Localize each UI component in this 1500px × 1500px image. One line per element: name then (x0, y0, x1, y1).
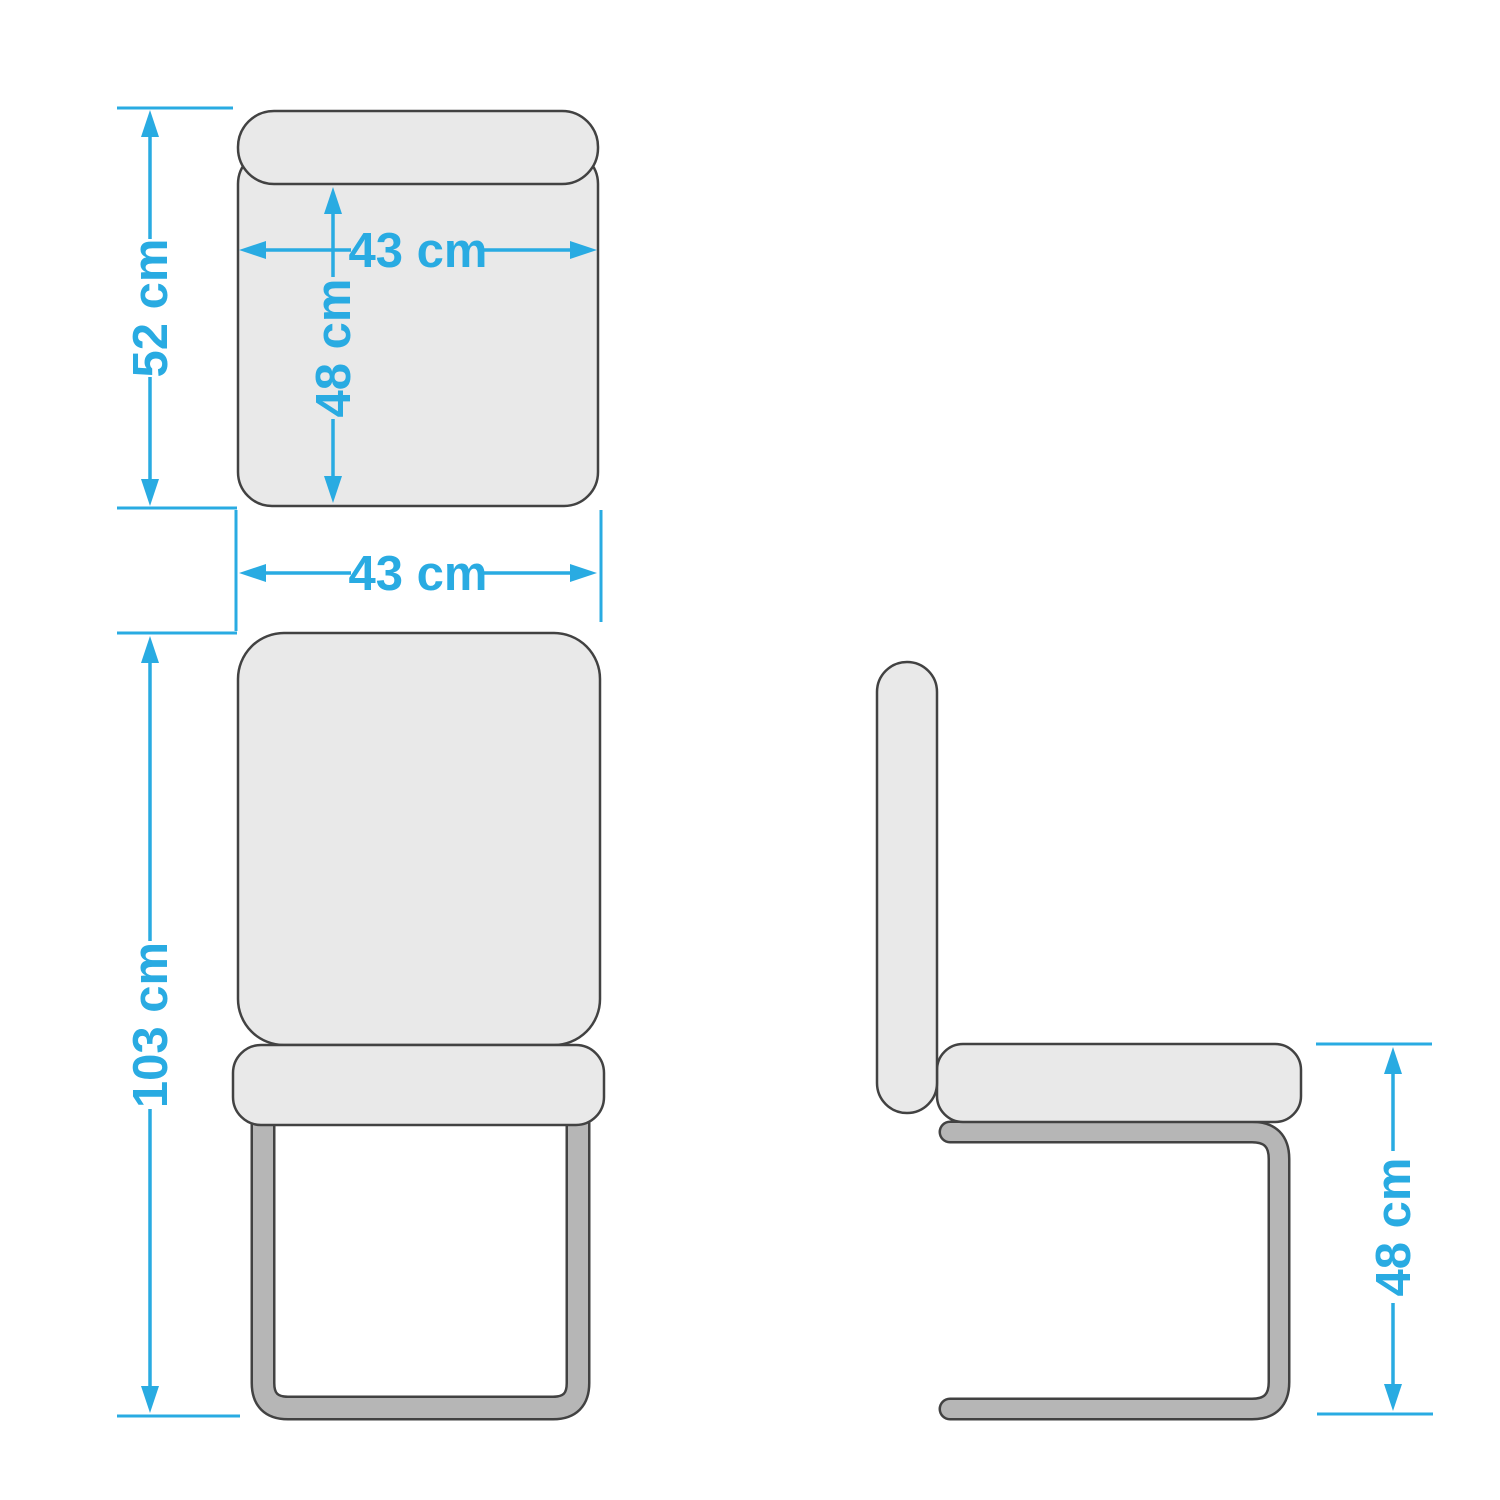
dim-label-top-seat-width: 43 cm (349, 224, 488, 278)
dim-label-front-overall-width: 43 cm (349, 547, 488, 601)
side-view-cantilever-frame-outline (950, 1132, 1279, 1409)
dim-label-top-seat-depth: 48 cm (307, 279, 361, 418)
arrowhead-up (141, 110, 159, 137)
side-view-backrest (877, 662, 937, 1113)
arrowhead-up (141, 636, 159, 663)
diagram-canvas: 43 cm 48 cm 52 cm 43 cm (0, 0, 1500, 1500)
front-view-seat-cushion (233, 1045, 604, 1125)
chair-dimension-diagram: 43 cm 48 cm 52 cm 43 cm (0, 0, 1500, 1500)
dim-side-seat-height: 48 cm (1316, 1044, 1433, 1414)
arrowhead-up (1384, 1047, 1402, 1074)
dim-label-side-seat-height: 48 cm (1367, 1158, 1421, 1297)
side-view-cantilever-frame (950, 1132, 1279, 1409)
dim-front-overall-height: 103 cm (117, 633, 240, 1416)
arrowhead-left (239, 564, 266, 582)
arrowhead-down (1384, 1384, 1402, 1411)
front-view (233, 633, 604, 1408)
arrowhead-down (141, 479, 159, 506)
front-view-sled-frame-outline (263, 1108, 578, 1408)
arrowhead-down (141, 1386, 159, 1413)
top-view (238, 111, 598, 506)
dim-top-total-depth: 52 cm (117, 108, 233, 506)
side-view (877, 662, 1301, 1409)
front-view-sled-frame (263, 1108, 578, 1408)
front-view-backrest (238, 633, 600, 1045)
top-view-headrest (238, 111, 598, 184)
dim-front-overall-width: 43 cm (117, 508, 601, 631)
dim-label-front-overall-height: 103 cm (124, 942, 178, 1108)
side-view-seat-cushion (937, 1044, 1301, 1122)
top-view-seat (238, 150, 598, 506)
dim-label-top-total-depth: 52 cm (124, 239, 178, 378)
arrowhead-right (570, 564, 597, 582)
